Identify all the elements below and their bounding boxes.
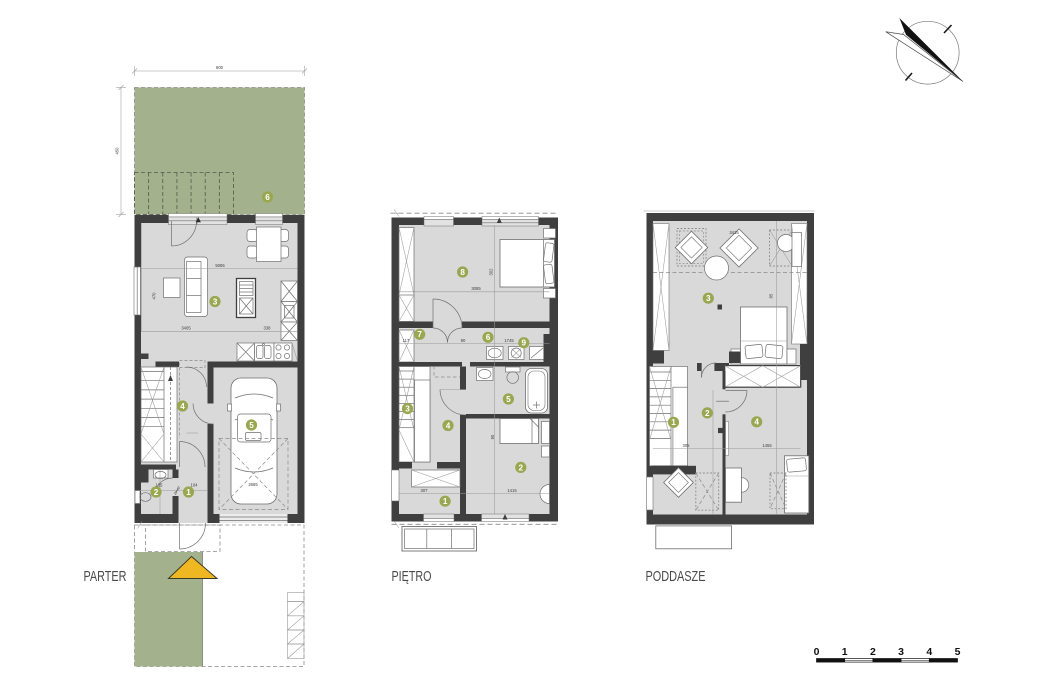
svg-text:4: 4: [754, 418, 759, 427]
svg-text:1415: 1415: [507, 488, 517, 493]
svg-text:90: 90: [461, 338, 466, 343]
svg-text:5: 5: [506, 395, 511, 404]
svg-text:305: 305: [683, 443, 691, 448]
svg-text:450: 450: [115, 147, 120, 155]
svg-text:470: 470: [152, 292, 157, 300]
svg-text:0: 0: [814, 646, 820, 658]
svg-text:104: 104: [191, 483, 199, 488]
svg-text:2: 2: [870, 646, 876, 658]
svg-text:4: 4: [180, 402, 185, 411]
svg-text:5: 5: [955, 646, 961, 658]
svg-text:5065: 5065: [215, 263, 225, 268]
svg-text:1455: 1455: [762, 443, 772, 448]
svg-text:8: 8: [460, 268, 465, 277]
svg-text:7: 7: [417, 330, 422, 339]
svg-text:1: 1: [671, 418, 676, 427]
svg-text:117: 117: [403, 338, 410, 343]
svg-text:PODDASZE: PODDASZE: [646, 569, 706, 585]
svg-text:302: 302: [489, 268, 494, 276]
svg-text:PARTER: PARTER: [84, 569, 127, 585]
svg-text:338: 338: [264, 326, 272, 331]
svg-text:4: 4: [926, 646, 932, 658]
svg-text:1: 1: [186, 488, 191, 497]
svg-text:1: 1: [842, 646, 848, 658]
svg-text:3: 3: [213, 297, 218, 306]
svg-text:2: 2: [519, 463, 524, 472]
svg-text:9: 9: [522, 339, 527, 348]
svg-text:6: 6: [486, 333, 491, 342]
svg-text:3415: 3415: [729, 230, 739, 235]
svg-text:1745: 1745: [504, 338, 514, 343]
svg-text:600: 600: [216, 65, 224, 70]
svg-text:3: 3: [898, 646, 904, 658]
svg-text:307: 307: [421, 488, 429, 493]
svg-text:3405: 3405: [181, 326, 191, 331]
svg-text:6: 6: [265, 193, 270, 202]
svg-text:4: 4: [446, 421, 451, 430]
svg-text:2: 2: [154, 488, 159, 497]
svg-text:PIĘTRO: PIĘTRO: [392, 569, 432, 585]
svg-text:3085: 3085: [471, 286, 481, 291]
svg-text:1: 1: [443, 497, 448, 506]
svg-text:85: 85: [769, 293, 774, 298]
svg-text:3: 3: [706, 294, 711, 303]
svg-text:3: 3: [405, 405, 410, 414]
svg-text:2: 2: [705, 409, 710, 418]
svg-text:90: 90: [490, 434, 495, 439]
svg-text:2665: 2665: [248, 482, 258, 487]
svg-text:5: 5: [249, 421, 254, 430]
